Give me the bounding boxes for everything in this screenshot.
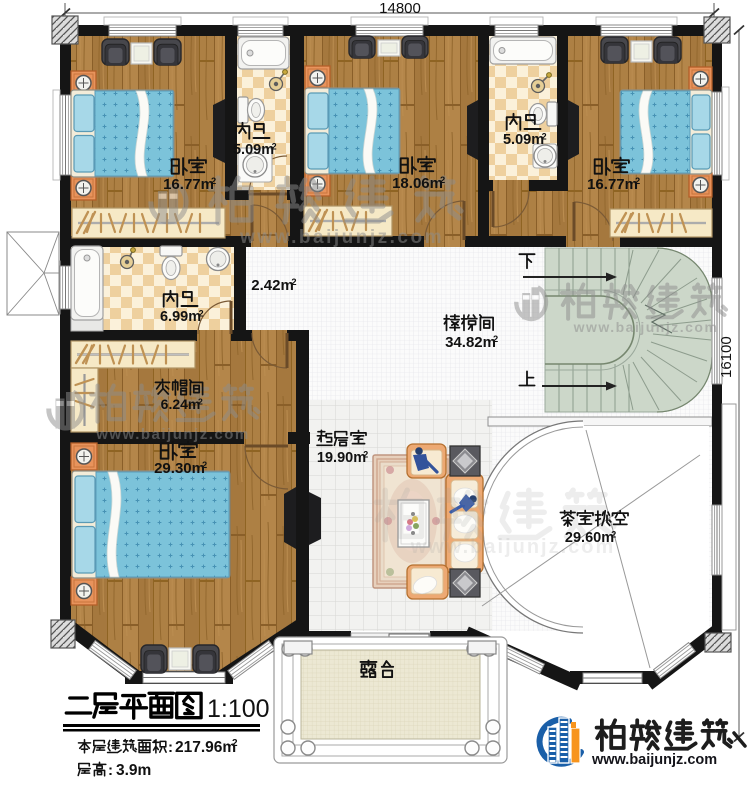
svg-text:14800: 14800: [379, 0, 421, 17]
svg-text:5.09m: 5.09m: [503, 132, 544, 148]
svg-text:29.60m: 29.60m: [565, 530, 614, 546]
svg-text:2: 2: [635, 176, 640, 186]
svg-text:2: 2: [232, 738, 238, 749]
svg-text:2: 2: [611, 529, 616, 539]
svg-text:2: 2: [542, 131, 547, 141]
svg-text:1:100: 1:100: [207, 695, 270, 723]
svg-text:29.30m: 29.30m: [154, 460, 205, 477]
svg-text:2: 2: [440, 175, 445, 185]
svg-text:217.96m: 217.96m: [175, 739, 236, 756]
svg-text:www.baijunjz.com: www.baijunjz.com: [95, 426, 249, 443]
svg-text:2: 2: [291, 277, 296, 287]
svg-text:2: 2: [272, 141, 277, 151]
svg-text:16100: 16100: [718, 336, 735, 378]
svg-text:2: 2: [493, 334, 498, 344]
svg-text:3.9m: 3.9m: [116, 762, 151, 779]
svg-text:6.24m: 6.24m: [161, 396, 201, 412]
svg-text:16.77m: 16.77m: [163, 176, 214, 193]
svg-text:6.99m: 6.99m: [160, 309, 201, 325]
svg-text::: :: [168, 739, 173, 756]
svg-text:2: 2: [199, 308, 204, 318]
svg-text:www.baijunjz.com: www.baijunjz.com: [591, 752, 717, 768]
svg-text:19.90m: 19.90m: [317, 450, 366, 466]
svg-text:2.42m: 2.42m: [251, 277, 294, 294]
svg-text:5.09m: 5.09m: [233, 142, 274, 158]
svg-text:2: 2: [363, 449, 368, 459]
svg-text:18.06m: 18.06m: [392, 175, 443, 192]
svg-text:2: 2: [198, 397, 203, 407]
svg-text::: :: [108, 762, 113, 779]
svg-text:www.baijunjz.com: www.baijunjz.com: [239, 227, 444, 248]
svg-text:16.77m: 16.77m: [587, 176, 638, 193]
svg-text:2: 2: [202, 460, 207, 470]
svg-text:34.82m: 34.82m: [445, 334, 496, 351]
svg-text:2: 2: [211, 176, 216, 186]
svg-text:www.baijunjz.com: www.baijunjz.com: [573, 319, 719, 335]
